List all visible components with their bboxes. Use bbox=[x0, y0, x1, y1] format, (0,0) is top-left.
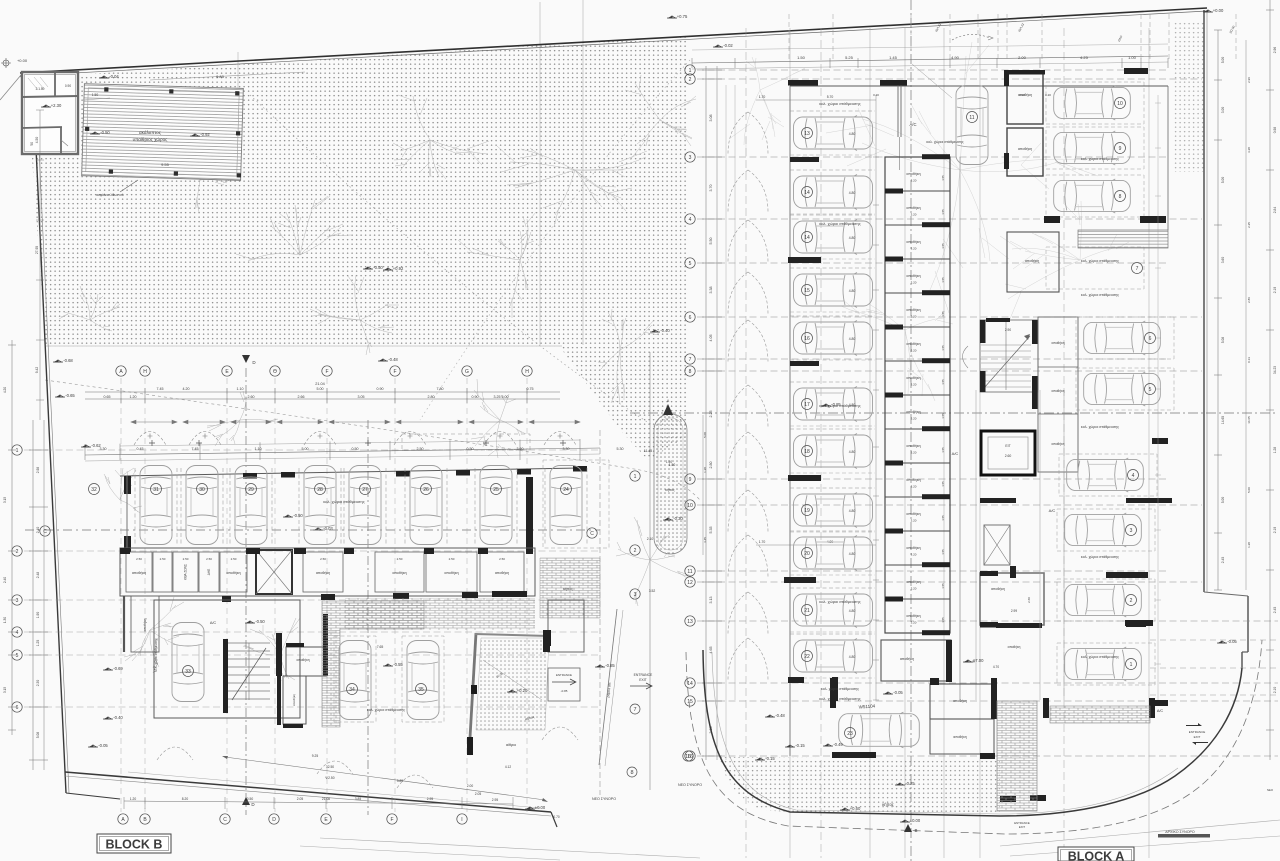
svg-text:1: 1 bbox=[16, 448, 19, 454]
svg-text:2.19: 2.19 bbox=[1273, 287, 1277, 294]
svg-text:0.90: 0.90 bbox=[65, 84, 71, 88]
svg-text:-0.55: -0.55 bbox=[393, 662, 403, 667]
svg-text:9: 9 bbox=[689, 477, 692, 483]
svg-text:ΑΗΕ: ΑΗΕ bbox=[207, 569, 211, 576]
svg-text:2.50: 2.50 bbox=[397, 557, 403, 561]
svg-text:BLOCK A: BLOCK A bbox=[1068, 850, 1124, 861]
svg-text:αποθήκη: αποθήκη bbox=[1051, 389, 1064, 393]
svg-text:F: F bbox=[325, 369, 328, 375]
svg-text:2.98: 2.98 bbox=[36, 467, 40, 474]
svg-text:αποθήκη: αποθήκη bbox=[1008, 645, 1021, 649]
svg-text:-0.69: -0.69 bbox=[113, 666, 123, 671]
svg-text:2.50: 2.50 bbox=[183, 557, 189, 561]
svg-text:28: 28 bbox=[317, 487, 323, 493]
svg-text:A/C: A/C bbox=[910, 122, 917, 127]
svg-text:αποθήκη: αποθήκη bbox=[906, 376, 920, 380]
svg-text:ΚΘΑ ΖΩΝΣ: ΚΘΑ ΖΩΝΣ bbox=[184, 564, 188, 580]
svg-text:4: 4 bbox=[1132, 473, 1135, 479]
svg-text:3.20: 3.20 bbox=[911, 213, 917, 217]
svg-text:2.50: 2.50 bbox=[320, 557, 326, 561]
svg-text:3.20: 3.20 bbox=[911, 587, 917, 591]
svg-text:2.50: 2.50 bbox=[136, 557, 142, 561]
svg-text:υπαίθριος χώρος: υπαίθριος χώρος bbox=[133, 136, 169, 142]
svg-text:αίθριο: αίθριο bbox=[506, 743, 516, 747]
svg-text:F: F bbox=[390, 817, 393, 823]
svg-text:2.95: 2.95 bbox=[427, 797, 434, 801]
svg-text:0.20: 0.20 bbox=[873, 93, 879, 97]
svg-text:8: 8 bbox=[1119, 194, 1122, 200]
svg-text:14: 14 bbox=[804, 235, 810, 241]
svg-text:5.00: 5.00 bbox=[1221, 177, 1225, 184]
svg-text:6: 6 bbox=[16, 705, 19, 711]
svg-text:7.45: 7.45 bbox=[192, 447, 199, 451]
svg-text:ENTRANCE: ENTRANCE bbox=[556, 673, 572, 677]
svg-text:5: 5 bbox=[16, 653, 19, 659]
svg-text:αποθήκη: αποθήκη bbox=[906, 172, 920, 176]
svg-text:A/C: A/C bbox=[210, 621, 217, 625]
svg-text:24: 24 bbox=[563, 487, 569, 493]
svg-text:+0.00: +0.00 bbox=[17, 58, 28, 63]
svg-text:1.50: 1.50 bbox=[669, 463, 676, 467]
svg-text:4.80: 4.80 bbox=[849, 236, 856, 240]
svg-text:4.70: 4.70 bbox=[993, 665, 999, 669]
svg-text:3.38: 3.38 bbox=[709, 287, 713, 294]
svg-text:-0.49: -0.49 bbox=[833, 742, 843, 747]
svg-text:1.20: 1.20 bbox=[130, 797, 137, 801]
svg-text:-0.68: -0.68 bbox=[63, 358, 73, 363]
svg-text:ΝΕΟ ΣΥΝΟΡΟ: ΝΕΟ ΣΥΝΟΡΟ bbox=[592, 797, 616, 801]
svg-text:4.20: 4.20 bbox=[183, 387, 190, 391]
svg-text:1.10: 1.10 bbox=[237, 387, 244, 391]
svg-text:1.55: 1.55 bbox=[941, 345, 945, 351]
svg-text:31: 31 bbox=[153, 487, 159, 493]
svg-text:αποθήκη: αποθήκη bbox=[906, 240, 920, 244]
svg-text:±0.00: ±0.00 bbox=[535, 805, 546, 810]
svg-text:34.23: 34.23 bbox=[1273, 366, 1277, 374]
svg-text:αποθήκη: αποθήκη bbox=[906, 342, 920, 346]
svg-text:0.65: 0.65 bbox=[104, 395, 111, 399]
svg-text:2: 2 bbox=[1130, 598, 1133, 604]
svg-text:-0.30: -0.30 bbox=[673, 516, 683, 521]
svg-text:EXIT: EXIT bbox=[1019, 825, 1026, 829]
svg-text:3.85: 3.85 bbox=[355, 797, 362, 801]
svg-text:3.20: 3.20 bbox=[911, 247, 917, 251]
svg-text:αποθήκη: αποθήκη bbox=[1051, 341, 1064, 345]
svg-text:3.20: 3.20 bbox=[911, 553, 917, 557]
svg-text:H: H bbox=[143, 369, 147, 375]
svg-text:αποθήκη: αποθήκη bbox=[906, 580, 920, 584]
svg-text:2.90: 2.90 bbox=[1005, 328, 1011, 332]
svg-text:5.00: 5.00 bbox=[302, 447, 309, 451]
svg-text:2.60: 2.60 bbox=[248, 395, 255, 399]
svg-text:21.08: 21.08 bbox=[322, 797, 330, 801]
svg-text:5.00: 5.00 bbox=[317, 387, 324, 391]
svg-text:3.20: 3.20 bbox=[911, 451, 917, 455]
svg-text:αποθήκη: αποθήκη bbox=[906, 444, 920, 448]
svg-text:3.05: 3.05 bbox=[358, 395, 365, 399]
svg-text:3.52: 3.52 bbox=[649, 589, 656, 593]
svg-text:5: 5 bbox=[689, 261, 692, 267]
svg-text:-0.05: -0.05 bbox=[893, 690, 903, 695]
svg-text:9.55: 9.55 bbox=[161, 162, 170, 167]
svg-text:18: 18 bbox=[804, 449, 810, 455]
svg-text:3.28: 3.28 bbox=[1247, 147, 1251, 153]
svg-text:2.84: 2.84 bbox=[1273, 207, 1277, 214]
svg-text:2.50: 2.50 bbox=[417, 447, 424, 451]
svg-text:αποθήκη: αποθήκη bbox=[906, 546, 920, 550]
svg-text:2.50: 2.50 bbox=[231, 557, 237, 561]
svg-text:20: 20 bbox=[804, 551, 810, 557]
svg-text:A/C: A/C bbox=[1157, 709, 1164, 713]
svg-text:30: 30 bbox=[199, 487, 205, 493]
svg-text:φ7.00: φ7.00 bbox=[973, 658, 985, 663]
svg-text:4.25: 4.25 bbox=[1080, 55, 1089, 60]
svg-text:4.80: 4.80 bbox=[849, 289, 856, 293]
svg-text:4.12: 4.12 bbox=[505, 765, 511, 769]
svg-text:αποθήκη: αποθήκη bbox=[444, 571, 458, 575]
svg-text:1.55: 1.55 bbox=[941, 243, 945, 249]
svg-text:-0.15: -0.15 bbox=[765, 756, 775, 761]
svg-text:3.20: 3.20 bbox=[911, 179, 917, 183]
svg-text:3.15: 3.15 bbox=[3, 497, 7, 503]
svg-text:A/C: A/C bbox=[1049, 508, 1056, 513]
svg-text:κολ. χώροι στάθμευσης: κολ. χώροι στάθμευσης bbox=[323, 499, 364, 504]
svg-text:κήπος: κήπος bbox=[563, 587, 573, 591]
svg-text:1.55: 1.55 bbox=[941, 209, 945, 215]
svg-text:3.85: 3.85 bbox=[397, 779, 404, 783]
svg-text:κολ. χώροι στάθμευσης: κολ. χώροι στάθμευσης bbox=[819, 403, 860, 408]
svg-text:-0.62: -0.62 bbox=[91, 443, 101, 448]
svg-text:2.86: 2.86 bbox=[1247, 297, 1251, 303]
svg-text:αποθήκη: αποθήκη bbox=[495, 571, 509, 575]
svg-text:κήπος: κήπος bbox=[882, 802, 894, 807]
svg-text:15: 15 bbox=[687, 699, 693, 705]
svg-text:5.30: 5.30 bbox=[617, 447, 624, 451]
svg-text:1: 1 bbox=[689, 68, 692, 74]
svg-text:κολ. χώροι στάθμευσης: κολ. χώροι στάθμευσης bbox=[1081, 555, 1119, 559]
svg-text:9.42: 9.42 bbox=[35, 367, 39, 374]
svg-text:27.95: 27.95 bbox=[35, 246, 39, 254]
svg-text:αποθήκη: αποθήκη bbox=[906, 614, 920, 618]
svg-text:0.75: 0.75 bbox=[527, 387, 534, 391]
svg-text:ΝΕΟ ΣΥΝΟΡΟ: ΝΕΟ ΣΥΝΟΡΟ bbox=[678, 783, 702, 787]
svg-text:7: 7 bbox=[689, 357, 692, 363]
svg-text:2.80: 2.80 bbox=[428, 395, 435, 399]
svg-text:2.50: 2.50 bbox=[160, 557, 166, 561]
svg-text:κολ. χώροι στάθμευσης: κολ. χώροι στάθμευσης bbox=[819, 696, 860, 701]
svg-text:κολ. χώροι στάθμευσης: κολ. χώροι στάθμευσης bbox=[821, 687, 859, 691]
svg-text:9.83: 9.83 bbox=[216, 74, 225, 79]
svg-text:ακάλυπτος: ακάλυπτος bbox=[139, 129, 162, 135]
svg-text:2 1.50: 2 1.50 bbox=[36, 87, 45, 91]
svg-text:-0.40: -0.40 bbox=[660, 328, 670, 333]
svg-text:0.50: 0.50 bbox=[467, 447, 474, 451]
svg-text:2.99: 2.99 bbox=[1011, 609, 1017, 613]
svg-text:-0.85: -0.85 bbox=[605, 663, 615, 668]
svg-text:αποθήκη: αποθήκη bbox=[316, 571, 330, 575]
svg-text:2.95: 2.95 bbox=[492, 798, 499, 802]
svg-text:1.55: 1.55 bbox=[941, 549, 945, 555]
svg-text:14.65: 14.65 bbox=[1247, 416, 1251, 424]
svg-text:αποθήκη: αποθήκη bbox=[906, 410, 920, 414]
svg-text:-0.15: -0.15 bbox=[795, 743, 805, 748]
svg-text:ασφάλεια λίθων κτλ: ασφάλεια λίθων κτλ bbox=[96, 193, 124, 197]
svg-text:ΝΕΟ: ΝΕΟ bbox=[1267, 788, 1274, 792]
svg-text:19: 19 bbox=[804, 508, 810, 514]
svg-text:Ψ2.50: Ψ2.50 bbox=[325, 776, 334, 780]
svg-text:3.60: 3.60 bbox=[517, 447, 524, 451]
svg-text:ENTRANCE: ENTRANCE bbox=[1189, 730, 1206, 734]
svg-text:1.50: 1.50 bbox=[92, 93, 99, 97]
svg-text:5.35: 5.35 bbox=[709, 527, 713, 534]
svg-text:2.48: 2.48 bbox=[36, 572, 40, 579]
svg-text:+0.60: +0.60 bbox=[850, 806, 861, 811]
svg-text:C: C bbox=[590, 531, 594, 537]
svg-text:-0.48: -0.48 bbox=[775, 713, 785, 718]
svg-text:κολ. χώροι στάθμευσης: κολ. χώροι στάθμευσης bbox=[1081, 655, 1119, 659]
svg-text:2: 2 bbox=[16, 549, 19, 555]
svg-text:F: F bbox=[393, 369, 396, 375]
svg-text:-0.85: -0.85 bbox=[561, 689, 568, 693]
svg-text:3.30: 3.30 bbox=[563, 447, 570, 451]
svg-text:-0.40: -0.40 bbox=[113, 715, 123, 720]
svg-text:32: 32 bbox=[91, 487, 97, 493]
svg-text:-0.05: -0.05 bbox=[98, 743, 108, 748]
svg-text:2.00: 2.00 bbox=[467, 784, 474, 788]
svg-text:5.00: 5.00 bbox=[502, 395, 509, 399]
svg-text:3.20: 3.20 bbox=[911, 519, 917, 523]
svg-text:3.13: 3.13 bbox=[709, 597, 713, 604]
svg-text:0.50: 0.50 bbox=[352, 447, 359, 451]
svg-text:9.25: 9.25 bbox=[312, 754, 319, 758]
svg-text:8: 8 bbox=[630, 770, 633, 776]
svg-text:-0.65: -0.65 bbox=[65, 393, 75, 398]
svg-text:29: 29 bbox=[248, 487, 254, 493]
svg-text:αποθήκη: αποθήκη bbox=[292, 694, 296, 706]
svg-text:4.80: 4.80 bbox=[849, 552, 856, 556]
svg-text:4.20: 4.20 bbox=[3, 387, 7, 393]
svg-text:7.45: 7.45 bbox=[157, 387, 164, 391]
svg-text:Θ: Θ bbox=[273, 369, 277, 375]
svg-text:2.45: 2.45 bbox=[1221, 557, 1225, 564]
svg-text:1.55: 1.55 bbox=[941, 175, 945, 181]
svg-text:8: 8 bbox=[689, 369, 692, 375]
svg-text:B: B bbox=[914, 828, 917, 833]
svg-text:αποθήκη: αποθήκη bbox=[392, 571, 406, 575]
svg-text:EXIT: EXIT bbox=[639, 678, 647, 682]
svg-text:αποθήκη: αποθήκη bbox=[906, 206, 920, 210]
svg-text:-0.50: -0.50 bbox=[293, 513, 303, 518]
svg-text:5.00: 5.00 bbox=[1221, 57, 1225, 64]
svg-text:2.40: 2.40 bbox=[36, 527, 40, 534]
svg-text:2.80: 2.80 bbox=[709, 462, 713, 469]
svg-text:27: 27 bbox=[362, 487, 368, 493]
svg-text:2.10: 2.10 bbox=[1273, 687, 1277, 694]
svg-text:4.80: 4.80 bbox=[849, 450, 856, 454]
svg-text:G: G bbox=[465, 369, 469, 375]
svg-text:1.55: 1.55 bbox=[941, 515, 945, 521]
svg-text:1.28: 1.28 bbox=[1273, 447, 1277, 454]
svg-text:0.90: 0.90 bbox=[472, 395, 479, 399]
svg-text:+0.92: +0.92 bbox=[393, 266, 404, 271]
svg-text:6: 6 bbox=[689, 315, 692, 321]
svg-text:2.96: 2.96 bbox=[1247, 77, 1251, 83]
svg-text:1: 1 bbox=[634, 474, 637, 480]
svg-text:1.28: 1.28 bbox=[1247, 542, 1251, 548]
svg-text:4.05: 4.05 bbox=[709, 335, 713, 342]
svg-text:21: 21 bbox=[804, 608, 810, 614]
svg-text:5.00: 5.00 bbox=[1247, 487, 1251, 493]
svg-text:7: 7 bbox=[633, 707, 636, 713]
svg-text:αποθήκη: αποθήκη bbox=[906, 308, 920, 312]
svg-text:12: 12 bbox=[687, 580, 693, 586]
svg-text:35: 35 bbox=[418, 687, 424, 693]
svg-text:2.25: 2.25 bbox=[1247, 222, 1251, 228]
svg-text:κήπος: κήπος bbox=[665, 488, 675, 492]
svg-text:D: D bbox=[272, 817, 276, 823]
svg-text:+2.30: +2.30 bbox=[51, 103, 62, 108]
svg-text:4.80: 4.80 bbox=[849, 609, 856, 613]
svg-text:1.55: 1.55 bbox=[941, 413, 945, 419]
svg-text:0.90: 0.90 bbox=[377, 387, 384, 391]
svg-text:4: 4 bbox=[689, 217, 692, 223]
svg-text:14: 14 bbox=[687, 681, 693, 687]
svg-text:0.13: 0.13 bbox=[1247, 357, 1251, 363]
svg-text:2.10: 2.10 bbox=[647, 537, 654, 541]
svg-text:+0.00: +0.00 bbox=[1213, 8, 1224, 13]
svg-text:4.80: 4.80 bbox=[849, 191, 856, 195]
svg-text:4.50: 4.50 bbox=[35, 137, 39, 144]
svg-text:1.50: 1.50 bbox=[797, 55, 806, 60]
svg-text:0.45: 0.45 bbox=[137, 447, 144, 451]
svg-text:13: 13 bbox=[687, 619, 693, 625]
svg-text:αποθήκη: αποθήκη bbox=[1018, 147, 1032, 151]
svg-text:4: 4 bbox=[16, 630, 19, 636]
svg-text:1.70: 1.70 bbox=[759, 95, 766, 99]
svg-text:1.20: 1.20 bbox=[130, 395, 137, 399]
svg-text:17: 17 bbox=[804, 402, 810, 408]
svg-text:αποθήκη: αποθήκη bbox=[900, 657, 914, 661]
svg-text:2: 2 bbox=[634, 548, 637, 554]
svg-text:0.98: 0.98 bbox=[1273, 127, 1277, 134]
svg-text:3.20: 3.20 bbox=[911, 417, 917, 421]
svg-text:1.55: 1.55 bbox=[941, 447, 945, 453]
svg-text:-0.70: -0.70 bbox=[552, 815, 559, 819]
svg-text:αποθήκη: αποθήκη bbox=[226, 571, 240, 575]
svg-text:-0.50: -0.50 bbox=[100, 130, 110, 135]
svg-text:5.70: 5.70 bbox=[827, 95, 834, 99]
svg-text:3.20: 3.20 bbox=[911, 349, 917, 353]
svg-text:-0.92: -0.92 bbox=[200, 132, 210, 137]
svg-text:25: 25 bbox=[493, 487, 499, 493]
svg-text:3.20: 3.20 bbox=[911, 621, 917, 625]
svg-text:4.65: 4.65 bbox=[709, 647, 713, 654]
svg-text:3.45: 3.45 bbox=[703, 537, 707, 543]
svg-text:2.05: 2.05 bbox=[297, 797, 304, 801]
svg-text:5.08: 5.08 bbox=[1221, 337, 1225, 344]
svg-text:16: 16 bbox=[685, 754, 691, 760]
svg-text:14: 14 bbox=[804, 190, 810, 196]
svg-text:3: 3 bbox=[16, 598, 19, 604]
svg-text:4.80: 4.80 bbox=[849, 337, 856, 341]
svg-text:3.00: 3.00 bbox=[1221, 107, 1225, 114]
svg-text:2.25: 2.25 bbox=[709, 411, 713, 418]
svg-text:αποθήκη: αποθήκη bbox=[906, 478, 920, 482]
svg-text:2.60: 2.60 bbox=[1005, 454, 1012, 458]
svg-text:H: H bbox=[525, 369, 529, 375]
svg-text:1.55: 1.55 bbox=[941, 277, 945, 283]
svg-text:κολ. χώροι στάθμευσης: κολ. χώροι στάθμευσης bbox=[819, 221, 860, 226]
svg-text:-0.05: -0.05 bbox=[1227, 639, 1237, 644]
svg-text:Μ.Χ. χώροι στάθμευσης: Μ.Χ. χώροι στάθμευσης bbox=[154, 638, 158, 672]
svg-text:5.00: 5.00 bbox=[1221, 497, 1225, 504]
svg-text:4.80: 4.80 bbox=[849, 655, 856, 659]
svg-text:αποθήκη: αποθήκη bbox=[953, 699, 967, 703]
svg-text:BLOCK B: BLOCK B bbox=[106, 838, 163, 852]
svg-text:32.50: 32.50 bbox=[326, 765, 334, 769]
svg-text:3.08: 3.08 bbox=[709, 115, 713, 122]
svg-text:2.19: 2.19 bbox=[1273, 527, 1277, 534]
svg-text:3.25: 3.25 bbox=[494, 395, 501, 399]
svg-text:2.00: 2.00 bbox=[1018, 55, 1027, 60]
svg-text:αποθήκη: αποθήκη bbox=[991, 587, 1005, 591]
svg-text:5.50: 5.50 bbox=[709, 238, 713, 245]
svg-text:-0.48: -0.48 bbox=[388, 357, 398, 362]
svg-text:6: 6 bbox=[1149, 336, 1152, 342]
svg-text:1.55: 1.55 bbox=[941, 311, 945, 317]
svg-text:A/C: A/C bbox=[952, 451, 959, 456]
svg-text:κολ. χώροι στάθμευσης: κολ. χώροι στάθμευσης bbox=[367, 708, 405, 712]
svg-text:ΑΡΧΙΚΟ ΣΥΝΟΡΟ: ΑΡΧΙΚΟ ΣΥΝΟΡΟ bbox=[1165, 830, 1195, 834]
svg-text:1.00: 1.00 bbox=[1128, 55, 1137, 60]
svg-text:21.04: 21.04 bbox=[315, 382, 325, 386]
svg-text:5.08: 5.08 bbox=[703, 432, 707, 438]
svg-text:34: 34 bbox=[349, 687, 355, 693]
svg-text:11.45: 11.45 bbox=[644, 449, 652, 453]
svg-text:EXIT: EXIT bbox=[1194, 735, 1201, 739]
svg-text:3.20: 3.20 bbox=[911, 281, 917, 285]
svg-text:11: 11 bbox=[687, 569, 692, 575]
svg-text:1.28: 1.28 bbox=[703, 467, 707, 473]
svg-text:2.96: 2.96 bbox=[1273, 47, 1277, 54]
svg-text:αποθήκη: αποθήκη bbox=[132, 571, 146, 575]
svg-text:1.25: 1.25 bbox=[36, 640, 40, 647]
svg-text:-0.50: -0.50 bbox=[255, 619, 265, 624]
svg-text:2.66: 2.66 bbox=[298, 395, 305, 399]
svg-text:ΕΙΤ: ΕΙΤ bbox=[1005, 444, 1010, 448]
svg-text:κολ. χώροι στάθμευσης: κολ. χώροι στάθμευσης bbox=[1081, 293, 1119, 297]
svg-text:11: 11 bbox=[969, 115, 974, 121]
svg-text:1.70: 1.70 bbox=[759, 540, 766, 544]
svg-text:10: 10 bbox=[1117, 101, 1123, 107]
svg-text:1.45: 1.45 bbox=[889, 55, 898, 60]
svg-text:2.30: 2.30 bbox=[36, 680, 40, 687]
svg-text:14.65: 14.65 bbox=[1221, 416, 1225, 424]
svg-text:3: 3 bbox=[1130, 528, 1133, 534]
svg-text:αποθήκη: αποθήκη bbox=[296, 658, 309, 662]
svg-text:αποθήκη: αποθήκη bbox=[143, 618, 147, 631]
svg-text:αποθήκη: αποθήκη bbox=[906, 274, 920, 278]
svg-text:2.60: 2.60 bbox=[1027, 597, 1031, 603]
svg-text:2.50: 2.50 bbox=[206, 557, 212, 561]
svg-text:+0.75: +0.75 bbox=[677, 14, 688, 19]
svg-text:1.30: 1.30 bbox=[3, 617, 7, 623]
svg-text:κολ. χώροι στάθμευσης: κολ. χώροι στάθμευσης bbox=[819, 599, 860, 604]
svg-text:15: 15 bbox=[804, 288, 810, 294]
svg-text:3: 3 bbox=[634, 592, 637, 598]
svg-text:1.55: 1.55 bbox=[941, 583, 945, 589]
svg-text:-0.02: -0.02 bbox=[723, 43, 733, 48]
